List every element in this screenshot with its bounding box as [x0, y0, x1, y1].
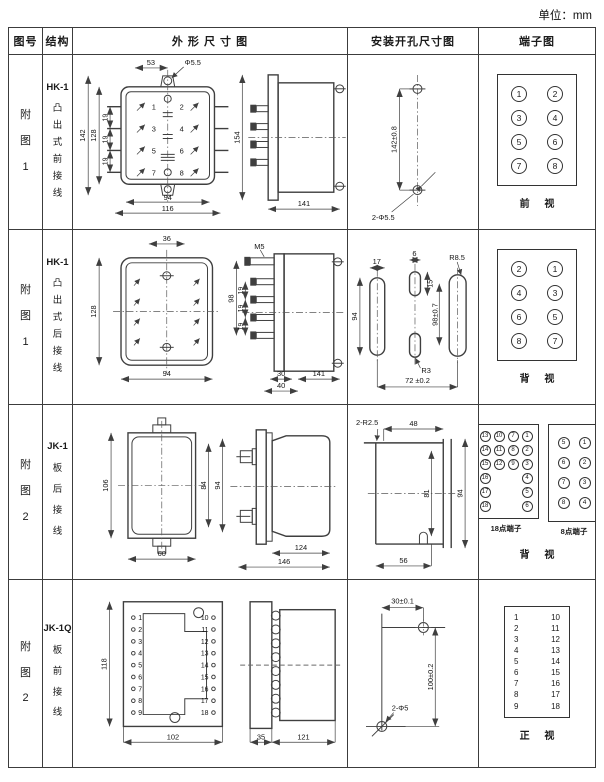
terminal-num: 1: [138, 615, 142, 622]
terminal-num: 18: [201, 710, 209, 717]
dim-label: 19: [103, 136, 110, 144]
terminal-num: 17: [551, 690, 560, 699]
terminal-circle: 4: [579, 497, 591, 509]
dim-label: 35: [257, 732, 265, 741]
dim-label: 19: [103, 114, 110, 122]
terminal-circle: 3: [579, 477, 591, 489]
terminal-num: 15: [551, 668, 560, 677]
row1-model-label: HK-1: [46, 82, 68, 93]
dim-label: 36: [163, 234, 171, 243]
terminal-num: 4: [514, 646, 518, 655]
row4-terminal-cell: 1 2 3 4 5 6 7 8 9 10 11 12 13: [479, 580, 595, 767]
row2-terminal-cell: 2 1 4 3 6 5 8 7 背 视: [479, 230, 595, 405]
terminal-box-front: 1 2 3 4 5 6 7 8: [497, 74, 577, 186]
row3-structure-label: 板后接线: [52, 459, 62, 543]
jk1-side-view: 124 146: [230, 430, 337, 567]
dim-label: R3: [421, 366, 431, 375]
terminal-circle: 1: [522, 431, 533, 442]
terminal-num: 13: [551, 646, 560, 655]
row2-structure-cell: HK-1 凸出式后接线: [43, 230, 73, 405]
terminal-num: 10: [201, 615, 209, 622]
terminal-num: 11: [551, 624, 560, 633]
dim-label: 124: [295, 543, 307, 552]
dim-label: 102: [167, 732, 179, 741]
terminal-circle: 5: [547, 309, 563, 325]
terminal-circle: 4: [511, 285, 527, 301]
relay-dimension-sheet: 单位：mm 图号 结构 外 形 尺 寸 图 安装开孔尺寸图 端子图 附图1 HK…: [0, 0, 604, 782]
terminal-8pt-label: 8点端子: [561, 526, 588, 537]
terminal-num: 17: [201, 698, 209, 705]
hk1-rear-outline-drawing: 36 128 94 M5: [73, 230, 347, 404]
row4-figure-label: 附图2: [19, 635, 31, 713]
dim-label: 6: [412, 249, 416, 258]
header-structure: 结构: [43, 28, 73, 55]
dim-label: 154: [232, 131, 241, 143]
terminal-num: 7: [152, 168, 156, 177]
dim-label: 2-Φ5.5: [372, 213, 395, 222]
dim-label: 60: [158, 549, 166, 558]
dim-label: 19: [238, 305, 245, 313]
dim-label: M5: [254, 242, 264, 251]
terminal-num: 11: [201, 627, 208, 634]
terminal-circle: 8: [547, 158, 563, 174]
terminal-num: 1: [152, 103, 156, 112]
view-label: 前 视: [514, 195, 561, 210]
dim-label: 94: [456, 489, 465, 497]
row1-figure-cell: 附图1: [9, 55, 43, 230]
terminal-circle: 1: [547, 261, 563, 277]
jk1q-front-view: 1 2 3 4 5 6 7 8 9 10 11 12 13 14 15 16 1: [100, 602, 223, 742]
terminal-num: 14: [201, 663, 209, 670]
terminal-circle: 6: [511, 309, 527, 325]
dim-label: 72 ±0.2: [405, 376, 430, 385]
terminal-circle: 2: [511, 261, 527, 277]
terminal-circle: 7: [558, 477, 570, 489]
row2-model-label: HK-1: [46, 257, 68, 268]
dim-label: 100±0.2: [426, 664, 435, 691]
hk1-front-side-view: 154 141: [232, 75, 345, 209]
terminal-num: 3: [514, 635, 518, 644]
terminal-num: 15: [201, 674, 209, 681]
terminal-circle: 8: [508, 445, 519, 456]
dim-label: 142: [78, 129, 87, 141]
terminal-num: 7: [138, 686, 142, 693]
terminal-num: 14: [551, 657, 560, 666]
terminal-num: 2: [514, 624, 518, 633]
terminal-circle: 4: [547, 110, 563, 126]
terminal-num: 1: [514, 613, 518, 622]
dim-label: 2-R2.5: [356, 418, 378, 427]
view-label: 正 视: [514, 727, 561, 742]
header-terminal: 端子图: [479, 28, 595, 55]
dim-label: 53: [147, 58, 155, 67]
row4-mounting-cell: 30±0.1 100±0.2 2-Φ5: [348, 580, 479, 767]
hk1-front-outline-drawing: 1 2 3 4 5 6 7 8 53 Φ5.5 142: [73, 55, 347, 229]
terminal-circle: 16: [480, 473, 491, 484]
row2-figure-cell: 附图1: [9, 230, 43, 405]
terminal-num: 4: [138, 651, 142, 658]
terminal-circle: 15: [480, 459, 491, 470]
terminal-num: 6: [138, 674, 142, 681]
row1-outline-cell: 1 2 3 4 5 6 7 8 53 Φ5.5 142: [73, 55, 348, 230]
dimension-table: 图号 结构 外 形 尺 寸 图 安装开孔尺寸图 端子图 附图1 HK-1 凸出式…: [8, 27, 596, 768]
terminal-box-rear: 2 1 4 3 6 5 8 7: [497, 249, 577, 361]
terminal-circle: 2: [579, 457, 591, 469]
jk1-mounting-drawing: 2-R2.5 48 81 94 56: [348, 405, 478, 579]
row2-structure-label: 凸出式后接线: [52, 275, 62, 378]
terminal-circle: 13: [480, 431, 491, 442]
terminal-circle: 2: [522, 445, 533, 456]
terminal-circle: 2: [547, 86, 563, 102]
terminal-circle: 6: [522, 501, 533, 512]
dim-label: 56: [399, 556, 407, 565]
dim-label: 19: [238, 287, 245, 295]
terminal-circle: 8: [558, 497, 570, 509]
terminal-18pt-label: 18点端子: [491, 523, 522, 534]
dim-label: 94: [213, 481, 222, 489]
row3-mounting-cell: 2-R2.5 48 81 94 56: [348, 405, 479, 580]
dim-label: 116: [162, 204, 174, 213]
row1-terminal-cell: 1 2 3 4 5 6 7 8 前 视: [479, 55, 595, 230]
row2-figure-label: 附图1: [19, 278, 31, 356]
row3-figure-cell: 附图2: [9, 405, 43, 580]
dim-label: 141: [298, 199, 310, 208]
unit-note: 单位：mm: [538, 7, 592, 23]
jk1-front-view: 106 84 94 60: [101, 418, 222, 559]
view-label: 背 视: [514, 370, 561, 385]
row4-outline-cell: 1 2 3 4 5 6 7 8 9 10 11 12 13 14 15 16 1: [73, 580, 348, 767]
terminal-circle: 6: [558, 457, 570, 469]
jk1q-outline-drawing: 1 2 3 4 5 6 7 8 9 10 11 12 13 14 15 16 1: [73, 580, 347, 767]
terminal-circle: 11: [494, 445, 505, 456]
row4-structure-label: 板前接线: [52, 641, 62, 725]
terminal-num: 9: [514, 702, 518, 711]
terminal-circle: 6: [547, 134, 563, 150]
terminal-num: 13: [201, 651, 209, 658]
dim-label: 128: [89, 129, 98, 141]
header-outline: 外 形 尺 寸 图: [73, 28, 348, 55]
row1-figure-label: 附图1: [19, 103, 31, 181]
dim-label: 40: [277, 381, 285, 390]
terminal-circle: 4: [522, 473, 533, 484]
terminal-left-column: 1 2 3 4 5 6 7 8 9: [514, 613, 518, 711]
terminal-box-8pt: 5 1 6 2 7 3 8 4: [548, 424, 596, 522]
terminal-circle: 9: [508, 459, 519, 470]
terminal-num: 5: [138, 663, 142, 670]
terminal-circle: 7: [508, 431, 519, 442]
jk1q-mounting-drawing: 30±0.1 100±0.2 2-Φ5: [348, 580, 478, 767]
terminal-circle: 1: [511, 86, 527, 102]
hk1-front-view: 1 2 3 4 5 6 7 8: [107, 70, 228, 202]
terminal-num: 5: [514, 657, 518, 666]
hk1-rear-side-view: M5 98 19 19: [226, 242, 343, 391]
row4-figure-cell: 附图2: [9, 580, 43, 767]
dim-label: 118: [100, 658, 109, 670]
header-mounting: 安装开孔尺寸图: [348, 28, 479, 55]
terminal-circle: 7: [511, 158, 527, 174]
dim-label: 106: [101, 479, 110, 491]
dim-label: 30: [277, 369, 285, 378]
terminal-right-column: 10 11 12 13 14 15 16 17 18: [551, 613, 560, 711]
hk1-front-mounting-drawing: 142±0.8 2-Φ5.5: [348, 55, 478, 229]
terminal-box-18pt-plain: 1 2 3 4 5 6 7 8 9 10 11 12 13: [504, 606, 570, 718]
terminal-num: 5: [152, 146, 156, 155]
terminal-circle: 14: [480, 445, 491, 456]
dim-label: 146: [278, 557, 290, 566]
dim-label: 15: [427, 280, 434, 288]
dim-label: 94: [164, 193, 172, 202]
dim-label: 98±0.7: [430, 303, 439, 326]
terminal-num: 3: [152, 125, 156, 134]
row4-model-label: JK-1Q: [44, 623, 72, 634]
dim-label: 121: [297, 732, 309, 741]
dim-label: 2-Φ5: [392, 704, 409, 713]
terminal-num: 6: [180, 146, 184, 155]
row1-mounting-cell: 142±0.8 2-Φ5.5: [348, 55, 479, 230]
terminal-num: 8: [138, 698, 142, 705]
row1-structure-cell: HK-1 凸出式前接线: [43, 55, 73, 230]
dim-label: 81: [422, 489, 431, 497]
hk1-rear-mounting-drawing: 17 94 6 15 98±0.7 R8.5 R3 7: [348, 230, 478, 404]
terminal-num: 2: [180, 103, 184, 112]
row3-structure-cell: JK-1 板后接线: [43, 405, 73, 580]
terminal-circle: 5: [558, 437, 570, 449]
dim-label: 30±0.1: [391, 597, 414, 606]
row3-figure-label: 附图2: [19, 453, 31, 531]
terminal-num: 8: [180, 168, 184, 177]
dim-label: 142±0.8: [390, 126, 399, 153]
dim-label: 19: [238, 322, 245, 330]
terminal-circle: 5: [522, 487, 533, 498]
terminal-num: 4: [180, 125, 184, 134]
terminal-circle: 12: [494, 459, 505, 470]
terminal-num: 16: [551, 679, 560, 688]
dim-label: 141: [313, 369, 325, 378]
dim-label: R8.5: [449, 253, 465, 262]
terminal-circle: 1: [579, 437, 591, 449]
terminal-num: 16: [201, 686, 209, 693]
terminal-num: 7: [514, 679, 518, 688]
terminal-circle: 18: [480, 501, 491, 512]
row3-terminal-cell: 13 10 7 1 14 11 8 2 15 12 9 3 16: [479, 405, 595, 580]
row1-structure-label: 凸出式前接线: [52, 100, 62, 203]
row2-outline-cell: 36 128 94 M5: [73, 230, 348, 405]
terminal-num: 18: [551, 702, 560, 711]
row3-outline-cell: 106 84 94 60 124: [73, 405, 348, 580]
terminal-circle: 3: [547, 285, 563, 301]
terminal-num: 9: [138, 710, 142, 717]
dim-label: 94: [350, 312, 359, 320]
hk1-front-dimensions: 53 Φ5.5 142 128 19 19 19 94 116: [78, 58, 220, 213]
terminal-num: 2: [138, 627, 142, 634]
terminal-num: 12: [201, 639, 209, 646]
dim-label: 17: [373, 257, 381, 266]
dim-label: 128: [89, 305, 98, 317]
header-figure: 图号: [9, 28, 43, 55]
dim-label: Φ5.5: [185, 58, 201, 67]
dim-label: 84: [199, 481, 208, 489]
terminal-circle: 5: [511, 134, 527, 150]
jk1q-side-view: 35 121: [240, 602, 343, 742]
terminal-num: 6: [514, 668, 518, 677]
view-label: 背 视: [514, 546, 561, 561]
terminal-num: 3: [138, 639, 142, 646]
row3-model-label: JK-1: [47, 441, 68, 452]
jk1-outline-drawing: 106 84 94 60 124: [73, 405, 347, 579]
dim-label: 48: [409, 419, 417, 428]
terminal-num: 8: [514, 690, 518, 699]
terminal-num: 12: [551, 635, 560, 644]
dim-label: 98: [226, 294, 235, 302]
row4-structure-cell: JK-1Q 板前接线: [43, 580, 73, 767]
terminal-num: 10: [551, 613, 560, 622]
terminal-circle: 3: [511, 110, 527, 126]
terminal-circle: 8: [511, 333, 527, 349]
row2-mounting-cell: 17 94 6 15 98±0.7 R8.5 R3 7: [348, 230, 479, 405]
terminal-circle: 3: [522, 459, 533, 470]
terminal-circle: 10: [494, 431, 505, 442]
terminal-circle: 7: [547, 333, 563, 349]
terminal-circle: 17: [480, 487, 491, 498]
hk1-rear-view: 36 128 94: [89, 234, 220, 379]
terminal-box-18pt: 13 10 7 1 14 11 8 2 15 12 9 3 16: [479, 424, 539, 519]
dim-label: 19: [103, 157, 110, 165]
dim-label: 94: [163, 369, 171, 378]
